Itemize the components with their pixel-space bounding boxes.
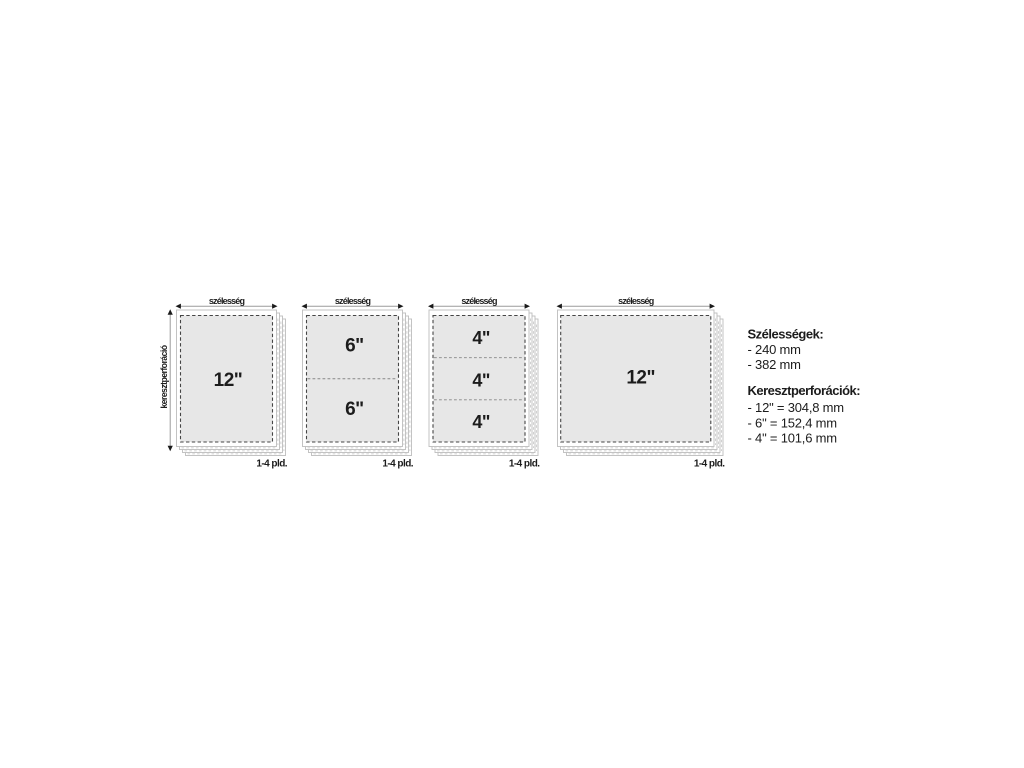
svg-text:- 12" = 304,8 mm: - 12" = 304,8 mm <box>748 400 844 415</box>
svg-text:- 6" = 152,4 mm: - 6" = 152,4 mm <box>748 415 837 430</box>
svg-text:- 4" = 101,6 mm: - 4" = 101,6 mm <box>748 431 837 446</box>
svg-text:- 240 mm: - 240 mm <box>748 342 801 357</box>
svg-text:6": 6" <box>345 335 364 356</box>
svg-text:12": 12" <box>214 370 243 391</box>
svg-text:szélesség: szélesség <box>335 296 371 306</box>
svg-text:- 382 mm: - 382 mm <box>748 357 801 372</box>
svg-text:1-4 pld.: 1-4 pld. <box>256 459 287 470</box>
svg-text:szélesség: szélesség <box>209 296 245 306</box>
svg-text:1-4 pld.: 1-4 pld. <box>382 459 413 470</box>
svg-text:1-4 pld.: 1-4 pld. <box>509 459 540 470</box>
svg-text:keresztperforáció: keresztperforáció <box>159 344 169 408</box>
svg-text:Szélességek:: Szélességek: <box>748 326 824 341</box>
svg-text:4": 4" <box>472 370 490 390</box>
svg-text:4": 4" <box>472 412 490 432</box>
svg-text:Keresztperforációk:: Keresztperforációk: <box>748 383 861 398</box>
svg-text:12": 12" <box>626 368 655 389</box>
svg-text:4": 4" <box>472 328 490 348</box>
svg-text:6": 6" <box>345 399 364 420</box>
svg-text:szélesség: szélesség <box>618 296 654 306</box>
svg-text:1-4 pld.: 1-4 pld. <box>694 459 725 470</box>
svg-text:szélesség: szélesség <box>461 296 497 306</box>
